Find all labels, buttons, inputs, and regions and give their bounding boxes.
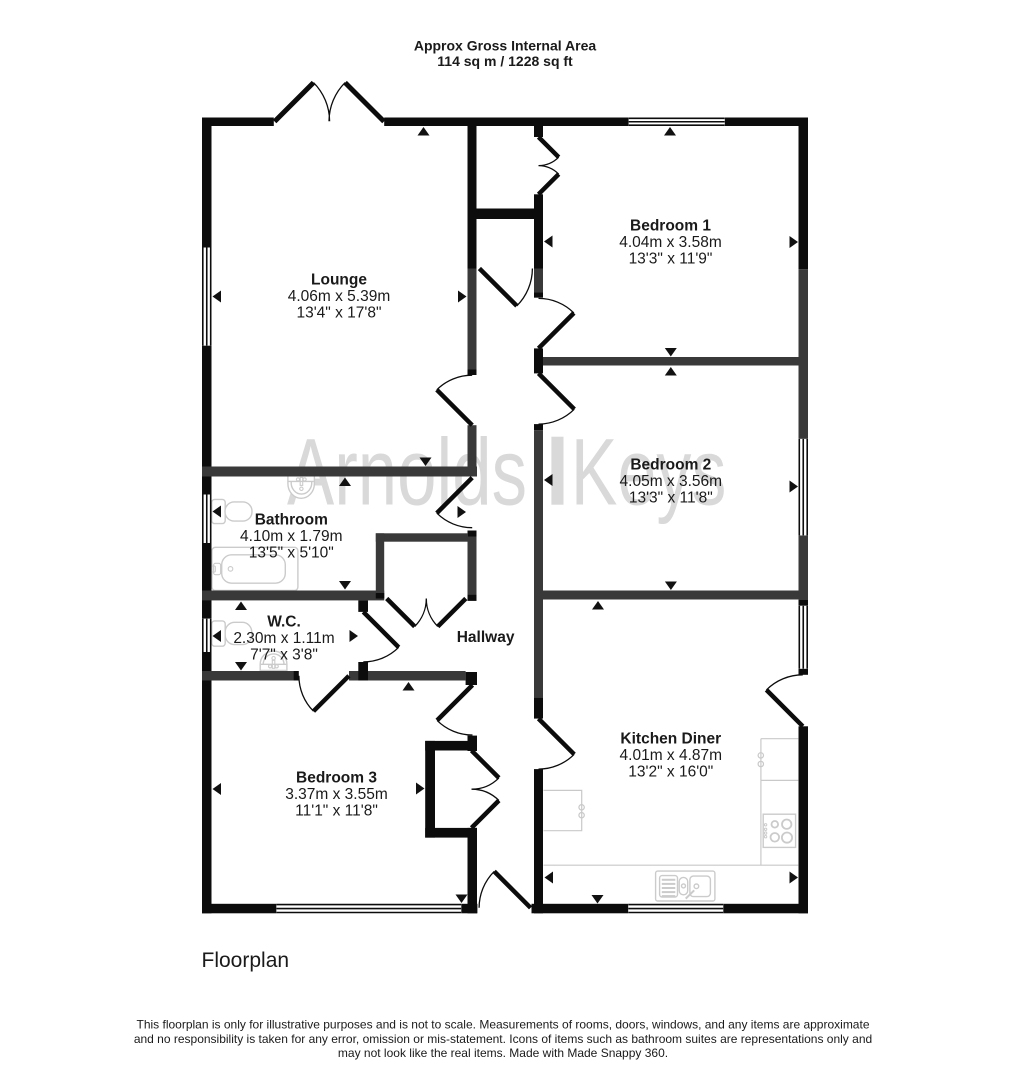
- svg-text:Kitchen Diner: Kitchen Diner: [620, 731, 721, 748]
- svg-text:W.C.: W.C.: [267, 614, 301, 631]
- svg-text:2.30m x 1.11m: 2.30m x 1.11m: [233, 630, 334, 647]
- svg-text:4.06m x 5.39m: 4.06m x 5.39m: [288, 288, 391, 305]
- svg-text:13'3" x 11'9": 13'3" x 11'9": [629, 251, 713, 268]
- svg-text:may not look like the real ite: may not look like the real items. Made w…: [338, 1046, 668, 1060]
- svg-text:4.04m x 3.58m: 4.04m x 3.58m: [619, 234, 722, 251]
- svg-text:This floorplan is only for ill: This floorplan is only for illustrative …: [136, 1018, 869, 1032]
- svg-text:Approx Gross Internal Area: Approx Gross Internal Area: [414, 37, 597, 53]
- svg-text:11'1" x 11'8": 11'1" x 11'8": [295, 803, 378, 820]
- svg-text:114 sq m / 1228 sq ft: 114 sq m / 1228 sq ft: [437, 53, 573, 69]
- svg-text:4.10m x 1.79m: 4.10m x 1.79m: [240, 528, 343, 545]
- svg-text:4.05m x 3.56m: 4.05m x 3.56m: [620, 473, 723, 490]
- svg-text:Bedroom 1: Bedroom 1: [630, 218, 711, 235]
- svg-text:and no responsibility is taken: and no responsibility is taken for any e…: [134, 1032, 872, 1046]
- svg-text:13'4" x 17'8": 13'4" x 17'8": [296, 305, 381, 322]
- svg-text:Bedroom 2: Bedroom 2: [630, 457, 711, 474]
- svg-text:Hallway: Hallway: [457, 629, 515, 646]
- svg-text:4.01m x 4.87m: 4.01m x 4.87m: [620, 747, 723, 764]
- svg-text:13'3" x 11'8": 13'3" x 11'8": [629, 490, 713, 507]
- svg-text:13'2" x 16'0": 13'2" x 16'0": [628, 764, 713, 781]
- svg-text:13'5" x 5'10": 13'5" x 5'10": [249, 545, 334, 562]
- svg-text:Bedroom 3: Bedroom 3: [296, 770, 377, 787]
- svg-text:Bathroom: Bathroom: [255, 512, 328, 529]
- svg-text:Floorplan: Floorplan: [202, 949, 290, 972]
- svg-text:3.37m x 3.55m: 3.37m x 3.55m: [285, 786, 388, 803]
- svg-text:Lounge: Lounge: [311, 272, 367, 289]
- svg-text:7'7" x 3'8": 7'7" x 3'8": [250, 647, 318, 664]
